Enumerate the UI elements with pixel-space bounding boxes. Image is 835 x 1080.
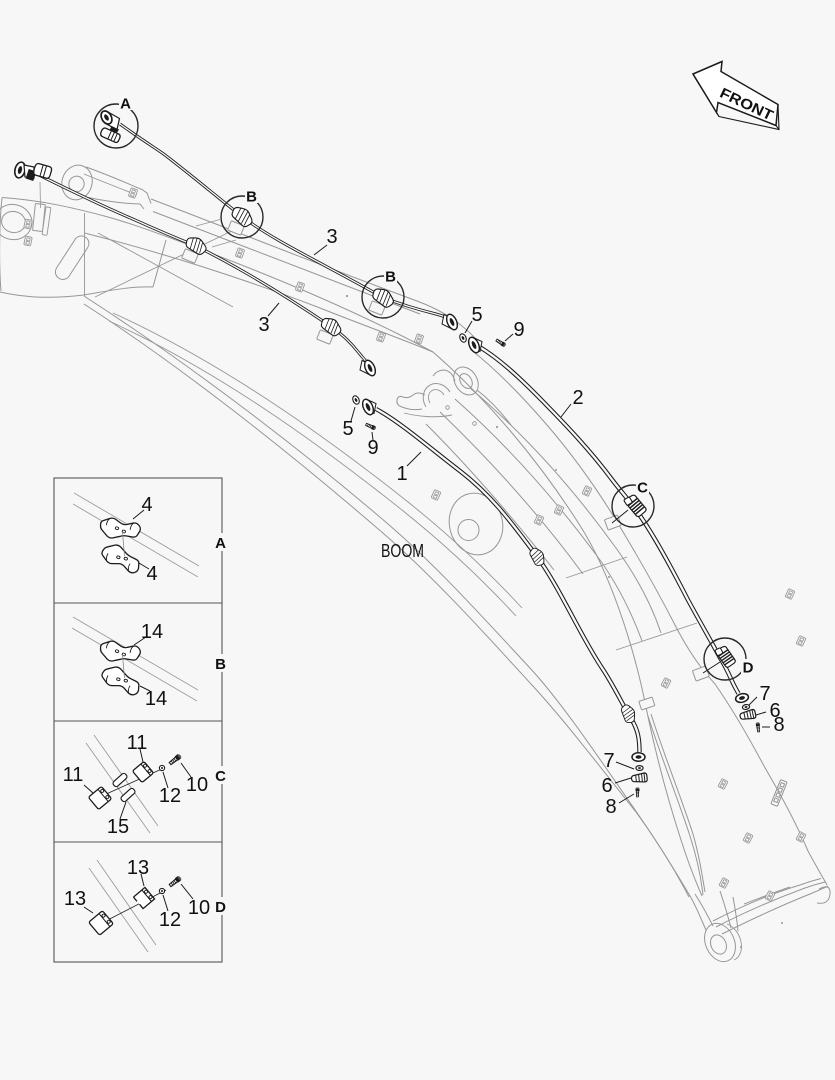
svg-text:11: 11 (127, 732, 148, 754)
svg-text:B: B (385, 269, 396, 286)
svg-text:11: 11 (63, 764, 84, 786)
svg-text:14: 14 (145, 688, 167, 710)
svg-text:8: 8 (773, 714, 784, 736)
svg-text:BOOM: BOOM (381, 540, 424, 561)
svg-text:10: 10 (188, 897, 210, 919)
svg-text:14: 14 (141, 621, 163, 643)
svg-text:5: 5 (471, 304, 482, 326)
svg-text:9: 9 (367, 437, 378, 459)
svg-text:4: 4 (141, 494, 152, 516)
svg-text:C: C (215, 768, 226, 785)
svg-text:A: A (120, 96, 131, 113)
svg-text:B: B (215, 656, 226, 673)
svg-text:3: 3 (258, 314, 269, 336)
svg-text:12: 12 (159, 909, 181, 931)
svg-text:D: D (743, 660, 754, 677)
svg-text:7: 7 (603, 750, 614, 772)
svg-text:12: 12 (159, 785, 181, 807)
svg-text:1: 1 (396, 463, 407, 485)
svg-text:A: A (215, 535, 226, 552)
svg-text:D: D (215, 899, 226, 916)
svg-text:3: 3 (326, 226, 337, 248)
svg-text:B: B (246, 189, 257, 206)
svg-text:15: 15 (107, 816, 129, 838)
svg-text:10: 10 (186, 774, 208, 796)
svg-text:13: 13 (64, 888, 86, 910)
svg-text:9: 9 (513, 319, 524, 341)
svg-text:C: C (637, 480, 648, 497)
svg-text:8: 8 (605, 796, 616, 818)
svg-text:2: 2 (572, 387, 583, 409)
svg-text:13: 13 (127, 857, 149, 879)
svg-text:6: 6 (601, 775, 612, 797)
svg-text:5: 5 (342, 418, 353, 440)
svg-text:4: 4 (146, 563, 157, 585)
